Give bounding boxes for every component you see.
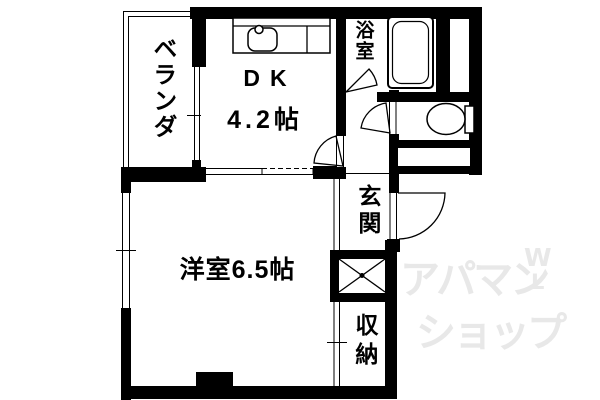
shoe-cabinet [394, 144, 474, 170]
entrance-label: 玄関 [355, 184, 380, 238]
toilet-door [361, 103, 390, 133]
bathtub [388, 17, 433, 88]
dk-area-label: 4.2帖 [203, 107, 327, 134]
dk-label: DK [228, 66, 312, 91]
floor-plan: アパマン W L ショップ [0, 0, 600, 400]
x-box [339, 259, 385, 292]
sliding-partition [205, 168, 313, 175]
faucet [255, 26, 263, 34]
entrance-door [398, 193, 445, 239]
bathroom-door [346, 69, 377, 92]
floor-plan-drawing [0, 0, 600, 400]
veranda-label: ベランダ [149, 36, 175, 140]
bathroom-label: 浴室 [352, 20, 373, 62]
toilet [427, 104, 474, 135]
western-room-label: 洋室6.5帖 [150, 257, 325, 284]
storage-label: 収納 [352, 313, 377, 371]
kitchen-counter [233, 18, 330, 53]
